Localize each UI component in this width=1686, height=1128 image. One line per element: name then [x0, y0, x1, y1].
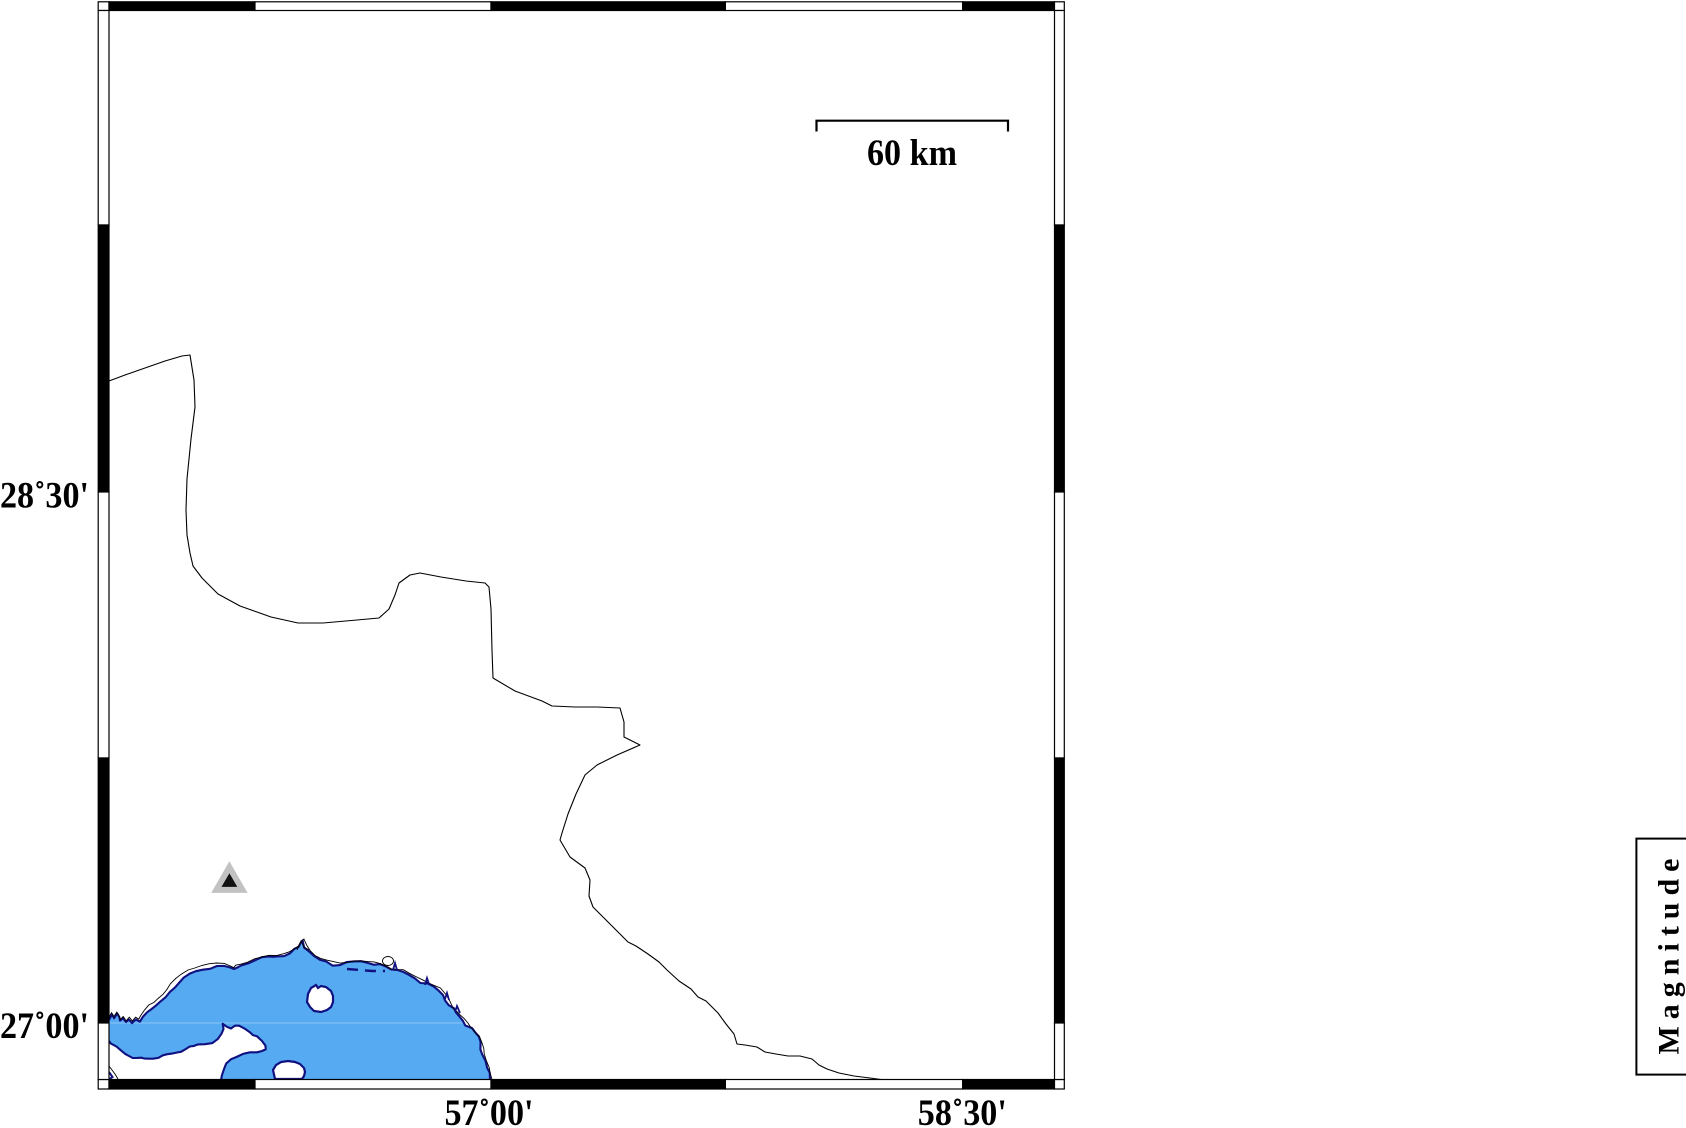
svg-text:Magnitude: Magnitude — [1653, 851, 1686, 1054]
svg-text:28˚30': 28˚30' — [0, 475, 89, 516]
svg-text:58˚30': 58˚30' — [918, 1093, 1007, 1128]
svg-text:60 km: 60 km — [867, 133, 957, 174]
svg-text:27˚00': 27˚00' — [0, 1006, 89, 1047]
svg-text:57˚00': 57˚00' — [445, 1093, 534, 1128]
